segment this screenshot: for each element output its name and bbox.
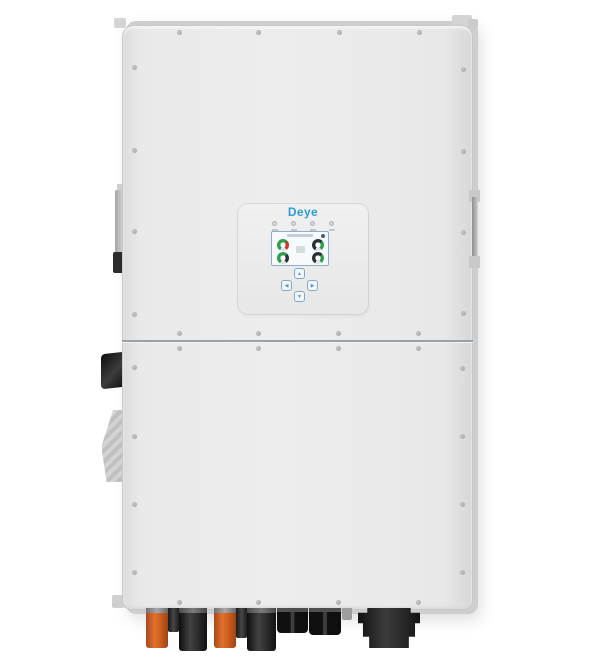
screw: [461, 67, 466, 72]
screw: [460, 502, 465, 507]
screw: [132, 312, 137, 317]
screw: [336, 346, 341, 351]
screw: [336, 331, 341, 336]
gauge-bottom-left: [277, 252, 289, 264]
screw: [416, 600, 421, 605]
pv-connector-negative: [247, 608, 276, 651]
screw: [177, 30, 182, 35]
pv-connector-negative: [179, 608, 207, 651]
gauge-top-left: [277, 239, 289, 251]
led-indicator-1: [272, 221, 277, 226]
product-image-inverter: Deye ▲◀▶▼: [0, 0, 600, 668]
led-indicator-3: [310, 221, 315, 226]
cable-gland-pair: [277, 608, 308, 633]
screw: [177, 346, 182, 351]
screw: [417, 30, 422, 35]
power-flow-hub-icon: [296, 246, 305, 253]
connector-stub: [236, 608, 247, 638]
connector-stub: [342, 608, 352, 620]
screw: [461, 311, 466, 316]
right-handle-rail: [472, 197, 477, 263]
connector-stub: [168, 608, 179, 632]
led-indicator-4: [329, 221, 334, 226]
button-up: ▲: [294, 268, 305, 279]
gauge-top-right: [312, 239, 324, 251]
mounting-tab-step: [468, 19, 478, 28]
pv-connector-positive: [214, 608, 236, 648]
screw: [177, 600, 182, 605]
screw: [336, 600, 341, 605]
screw: [460, 366, 465, 371]
screw: [460, 434, 465, 439]
button-right: ▶: [307, 280, 318, 291]
screw: [132, 148, 137, 153]
bottom-connector-row: [0, 608, 600, 668]
enclosure-seam-highlight: [122, 342, 473, 343]
screw: [256, 600, 261, 605]
screw: [416, 346, 421, 351]
lcd-status-icon: [321, 234, 325, 238]
button-down: ▼: [294, 291, 305, 302]
screw: [132, 65, 137, 70]
screw: [416, 331, 421, 336]
screw: [461, 149, 466, 154]
led-indicator-2: [291, 221, 296, 226]
screw: [132, 365, 137, 370]
ac-terminal-block: [358, 608, 420, 648]
screw: [460, 570, 465, 575]
button-left: ◀: [281, 280, 292, 291]
screw: [461, 230, 466, 235]
screw: [256, 331, 261, 336]
screw: [132, 502, 137, 507]
cable-gland-pair: [309, 608, 341, 635]
inverter-enclosure: [122, 25, 473, 610]
led-indicator-row: [238, 221, 368, 226]
screw: [132, 229, 137, 234]
lcd-title-bar: [287, 234, 313, 237]
screw: [337, 30, 342, 35]
screw: [132, 434, 137, 439]
mounting-tab-top-left: [114, 18, 126, 28]
screw: [256, 30, 261, 35]
pv-connector-positive: [146, 608, 168, 648]
lcd-screen: [271, 231, 329, 266]
right-handle-tab-bottom: [469, 256, 480, 268]
screw: [177, 331, 182, 336]
gauge-bottom-right: [312, 252, 324, 264]
screw: [256, 346, 261, 351]
brand-logo: Deye: [238, 207, 368, 218]
display-panel: Deye ▲◀▶▼: [238, 204, 368, 314]
screw: [132, 570, 137, 575]
